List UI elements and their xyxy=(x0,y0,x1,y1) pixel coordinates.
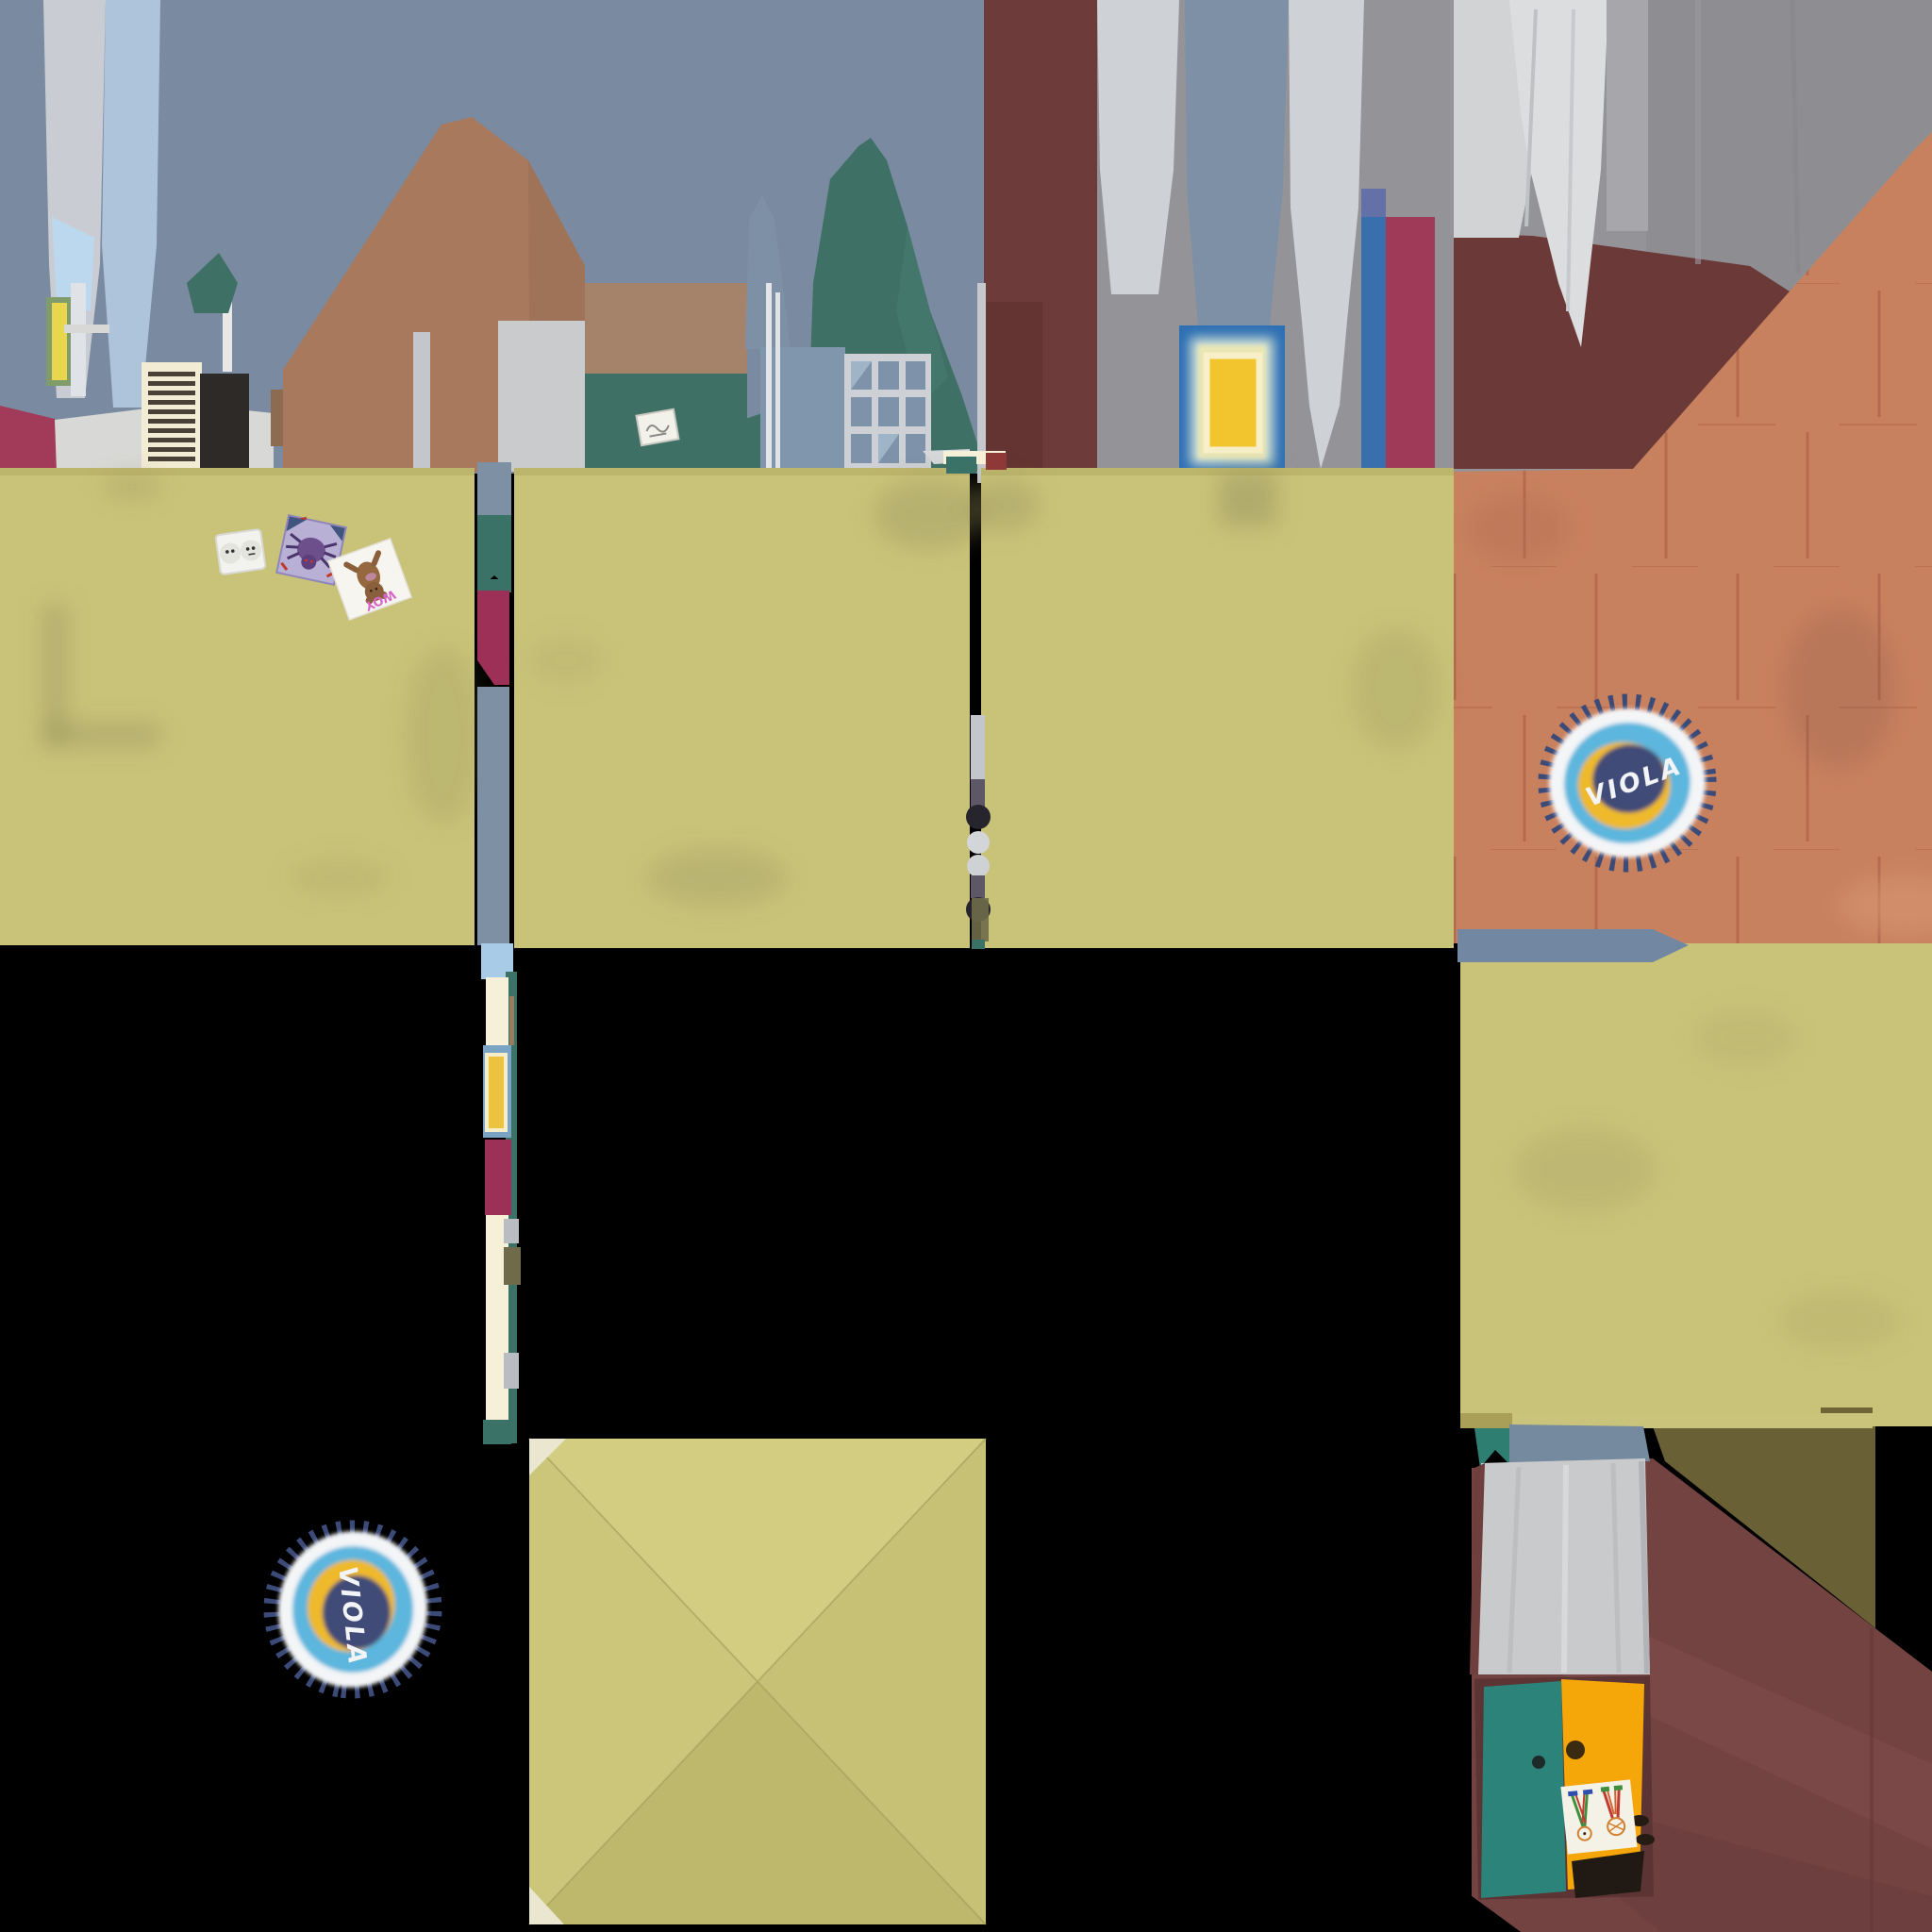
slate-band xyxy=(1509,1424,1650,1463)
wardrobe-child-drawing xyxy=(1560,1779,1637,1854)
glowing-window xyxy=(1179,325,1285,475)
outlet-sticker xyxy=(215,529,265,575)
slate-column xyxy=(1185,0,1289,326)
crimson-strip xyxy=(1386,217,1435,455)
blue-strip xyxy=(1361,217,1386,470)
fold-square xyxy=(529,1439,986,1924)
charcoal-door xyxy=(200,374,249,470)
window-grid xyxy=(844,354,931,470)
slate-building-face xyxy=(760,347,845,472)
wardrobe xyxy=(1474,1675,1655,1899)
teal-door-knob xyxy=(1532,1756,1545,1769)
room-curtain xyxy=(1470,1458,1650,1674)
blue-arrow-band xyxy=(1457,929,1689,962)
tiny-glow-window xyxy=(49,300,70,383)
texture-atlas-canvas: WOY VIOLA VIOLA xyxy=(0,0,1932,1932)
window-shutter xyxy=(142,362,202,470)
wardrobe-teal-door xyxy=(1481,1681,1566,1898)
yellow-door-knob xyxy=(1566,1740,1585,1759)
small-white-sign xyxy=(637,409,679,445)
